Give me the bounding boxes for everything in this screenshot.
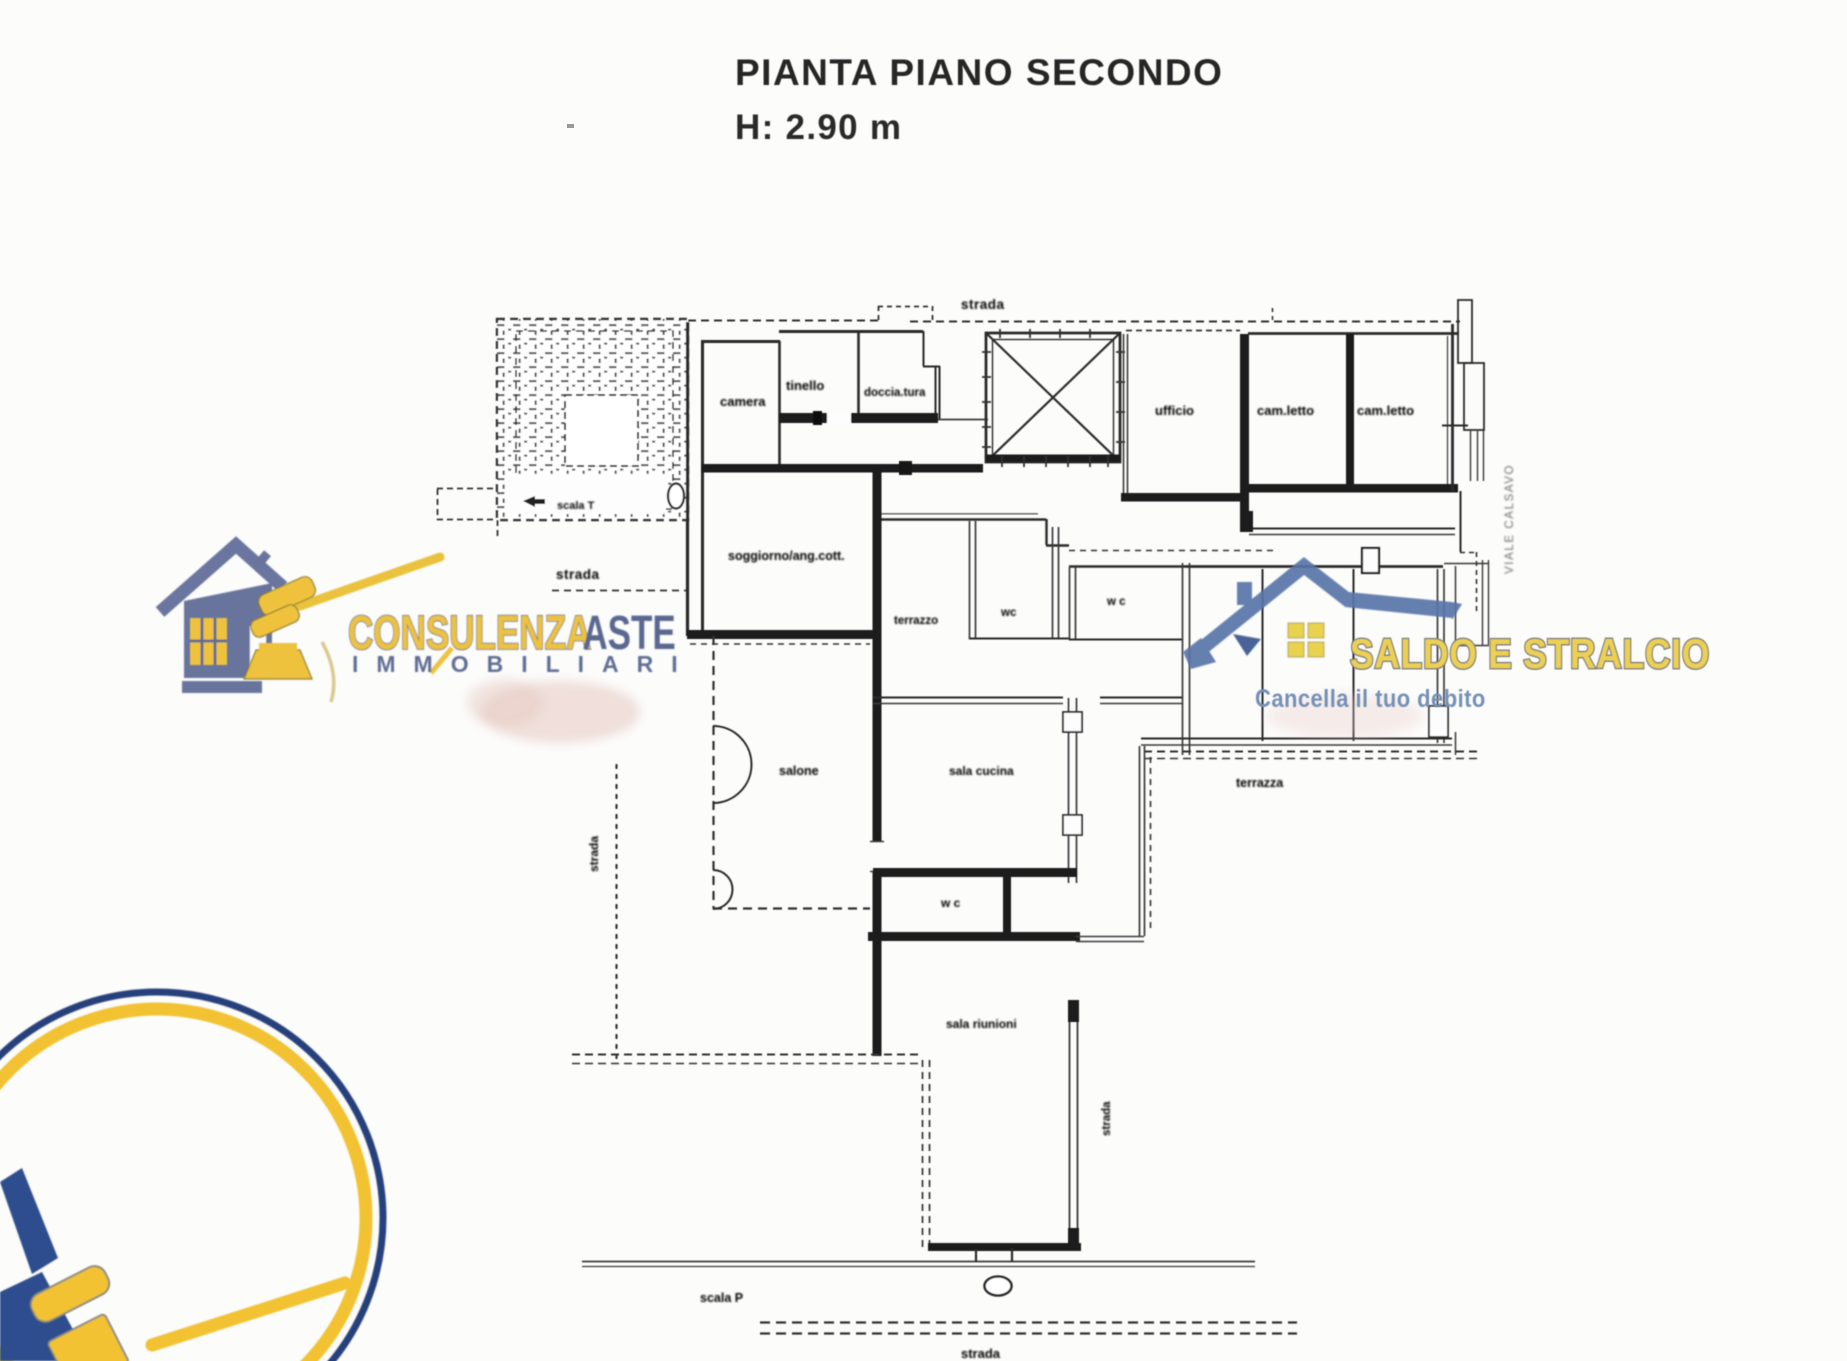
svg-text:wc: wc [1000, 607, 1017, 619]
svg-text:strada: strada [556, 567, 600, 582]
svg-text:strada: strada [1101, 1101, 1113, 1136]
svg-text:w c: w c [940, 896, 961, 910]
svg-text:sala cucina: sala cucina [949, 764, 1014, 778]
svg-text:terrazzo: terrazzo [894, 615, 938, 627]
svg-text:scala P: scala P [700, 1291, 743, 1305]
svg-text:terrazza: terrazza [1236, 776, 1284, 790]
svg-text:strada: strada [961, 297, 1005, 312]
svg-text:cam.letto: cam.letto [1357, 403, 1414, 418]
svg-text:VIALE CALSAVO: VIALE CALSAVO [1504, 464, 1516, 574]
svg-text:tinello: tinello [786, 378, 824, 393]
svg-text:ufficio: ufficio [1155, 403, 1194, 418]
svg-text:cam.letto: cam.letto [1257, 403, 1314, 418]
svg-text:soggiorno/ang.cott.: soggiorno/ang.cott. [728, 549, 845, 563]
svg-text:Cancella il tuo debito: Cancella il tuo debito [1255, 685, 1486, 713]
svg-text:doccia.tura: doccia.tura [864, 387, 926, 399]
svg-text:strada: strada [961, 1346, 1001, 1361]
svg-text:SALDO E STRALCIO: SALDO E STRALCIO [1350, 631, 1710, 678]
svg-text:H: 2.90 m: H: 2.90 m [735, 108, 902, 147]
svg-text:strada: strada [587, 836, 601, 872]
svg-text:sala riunioni: sala riunioni [946, 1017, 1017, 1031]
svg-text:camera: camera [720, 394, 766, 409]
svg-text:IMMOBILIARI: IMMOBILIARI [352, 651, 696, 677]
svg-text:scala T: scala T [557, 500, 595, 512]
svg-text:PIANTA PIANO SECONDO: PIANTA PIANO SECONDO [735, 52, 1223, 93]
svg-text:w c: w c [1106, 596, 1126, 608]
svg-text:salone: salone [779, 764, 819, 778]
